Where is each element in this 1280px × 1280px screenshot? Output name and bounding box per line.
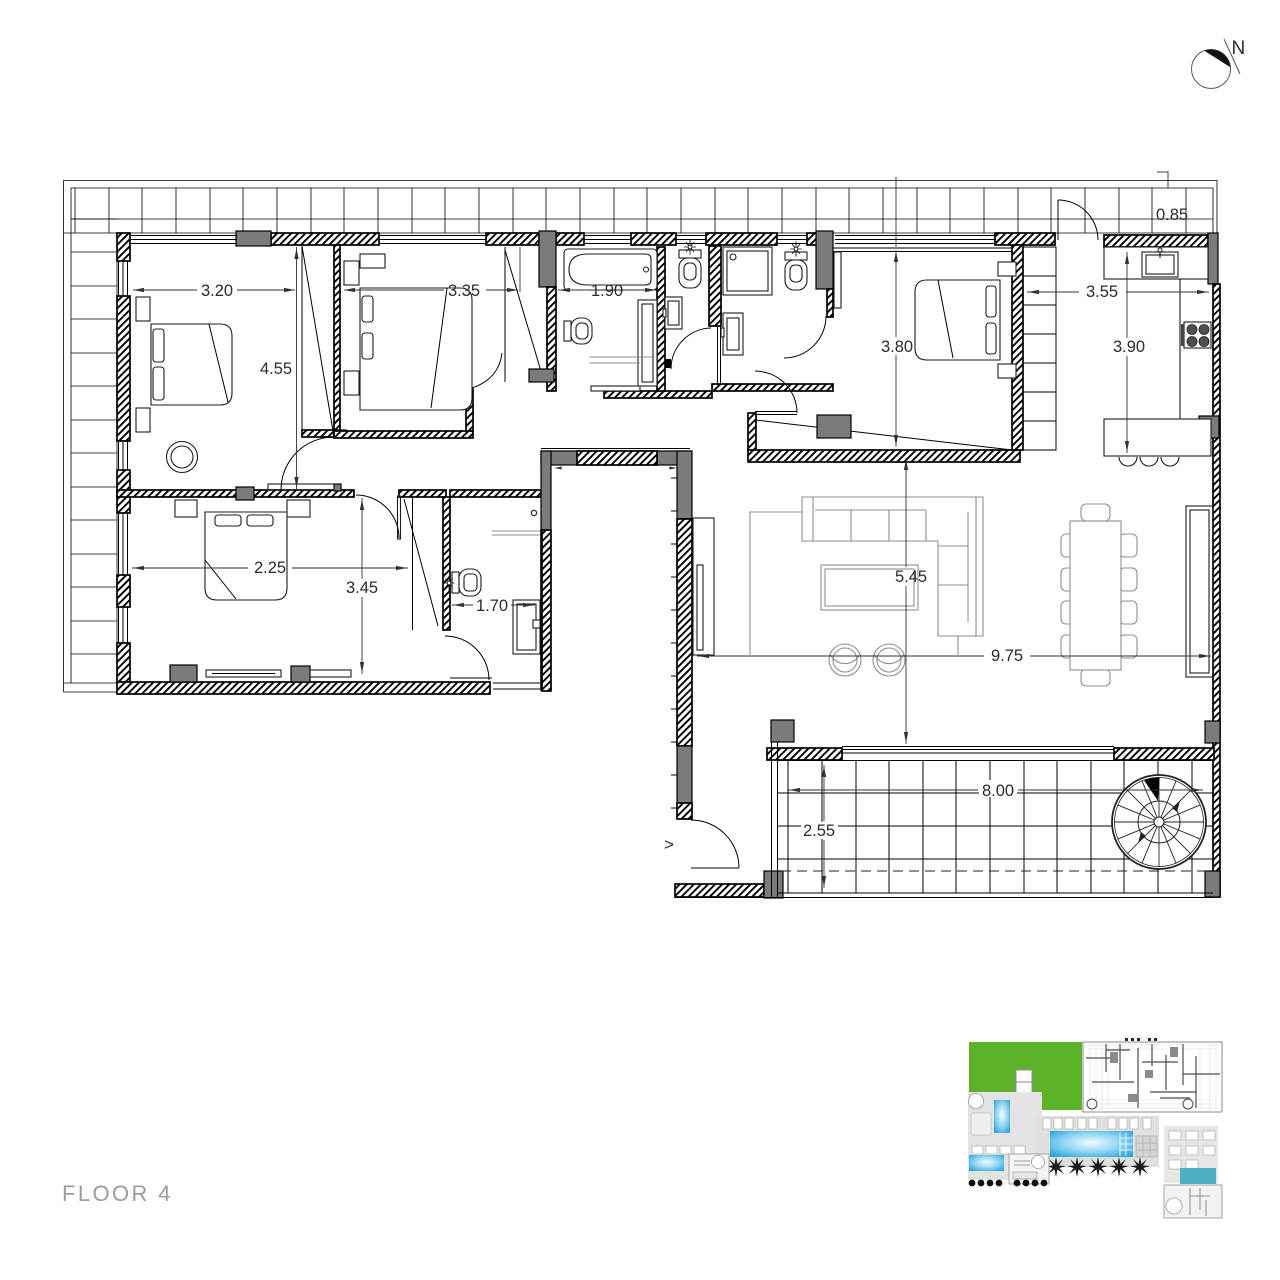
svg-text:0.85: 0.85 [1156, 206, 1188, 224]
svg-text:1.90: 1.90 [591, 282, 623, 300]
svg-text:8.00: 8.00 [982, 782, 1014, 800]
svg-text:3.20: 3.20 [201, 282, 233, 300]
svg-text:1.70: 1.70 [476, 597, 508, 615]
svg-text:2.55: 2.55 [803, 822, 835, 840]
svg-text:4.55: 4.55 [260, 360, 292, 378]
svg-text:N: N [1232, 38, 1246, 59]
svg-text:5.45: 5.45 [895, 568, 927, 586]
svg-text:3.55: 3.55 [1086, 283, 1118, 301]
svg-text:3.45: 3.45 [346, 579, 378, 597]
svg-text:9.75: 9.75 [991, 647, 1023, 665]
svg-text:3.90: 3.90 [1113, 338, 1145, 356]
svg-text:>: > [664, 835, 674, 854]
svg-text:3.35: 3.35 [448, 282, 480, 300]
svg-text:FLOOR 4: FLOOR 4 [62, 1181, 173, 1206]
svg-text:2.25: 2.25 [254, 559, 286, 577]
svg-text:3.80: 3.80 [881, 338, 913, 356]
